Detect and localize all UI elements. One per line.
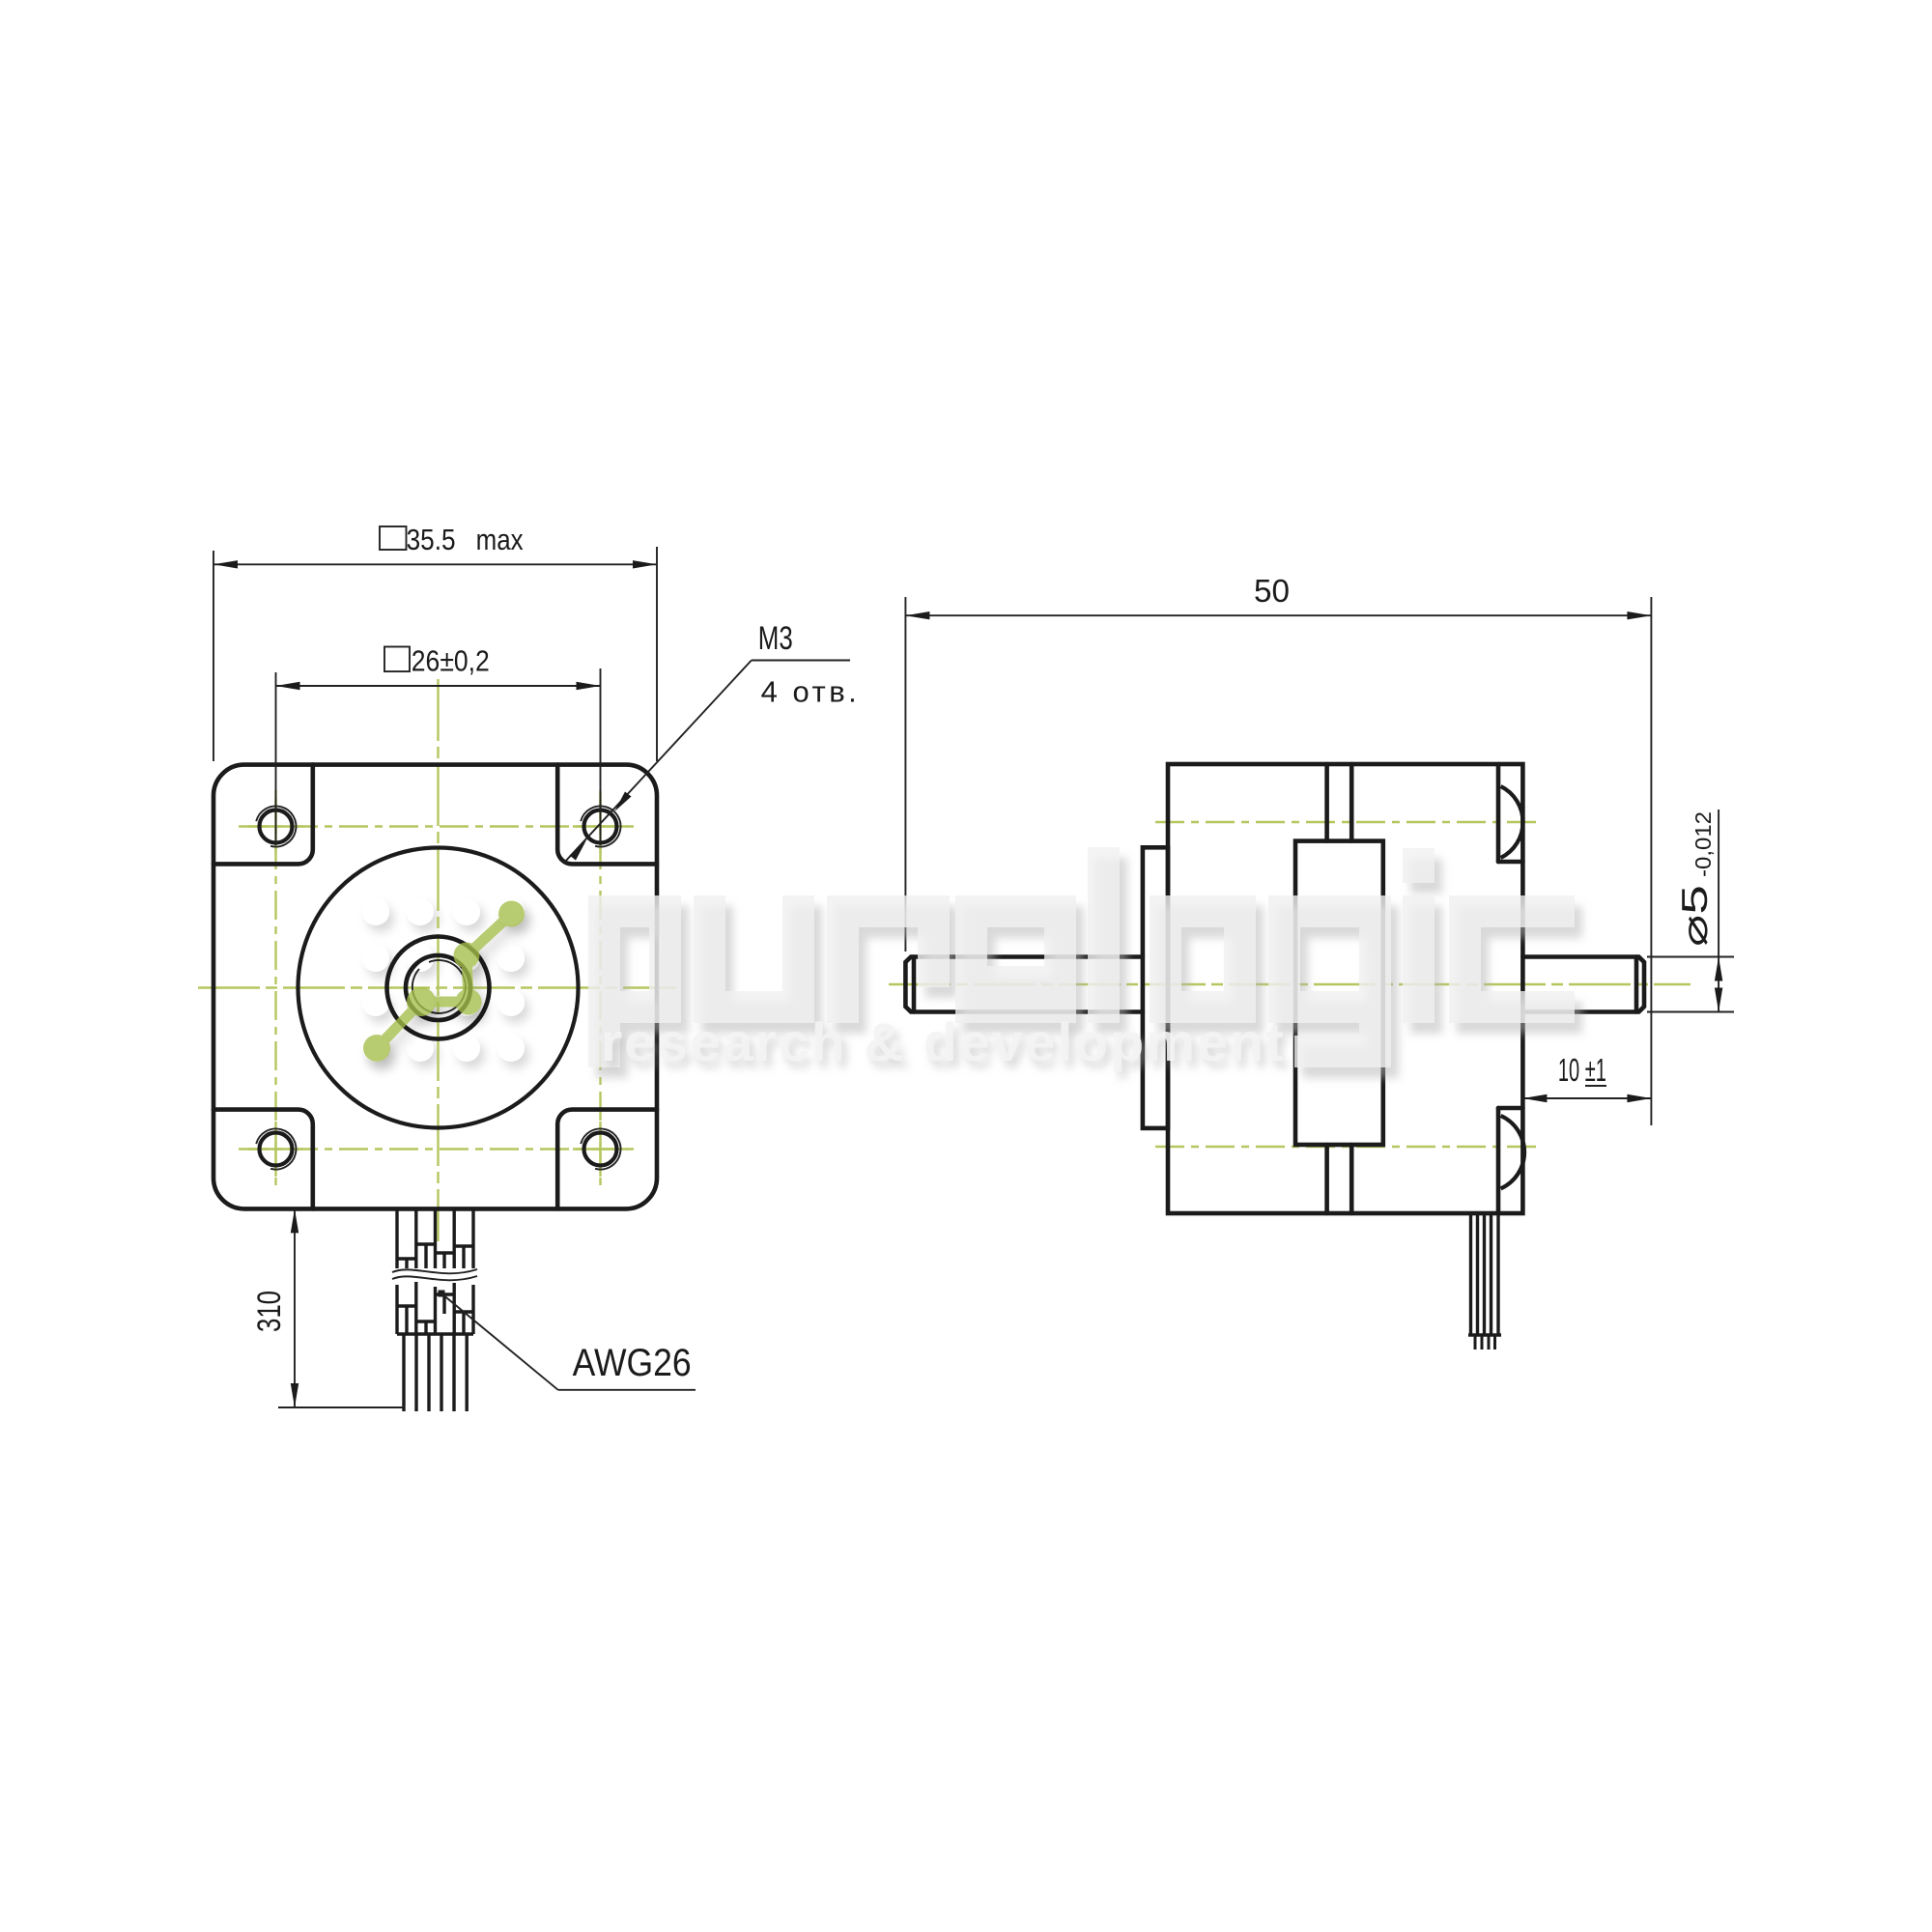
svg-text:AWG26: AWG26: [573, 1342, 692, 1384]
svg-text:-0,012: -0,012: [1690, 811, 1716, 877]
svg-text:50: 50: [1254, 573, 1290, 609]
svg-text:310: 310: [251, 1291, 288, 1332]
svg-text:research & development: research & development: [601, 1011, 1286, 1072]
svg-text:35.5: 35.5: [407, 523, 456, 556]
svg-text:M3: M3: [758, 620, 793, 657]
svg-text:10 ±1: 10 ±1: [1558, 1052, 1606, 1088]
svg-text:max: max: [476, 523, 524, 556]
svg-text:26±0,2: 26±0,2: [412, 644, 490, 678]
svg-text:⌀5: ⌀5: [1675, 885, 1715, 947]
svg-text:4 отв.: 4 отв.: [761, 675, 861, 709]
